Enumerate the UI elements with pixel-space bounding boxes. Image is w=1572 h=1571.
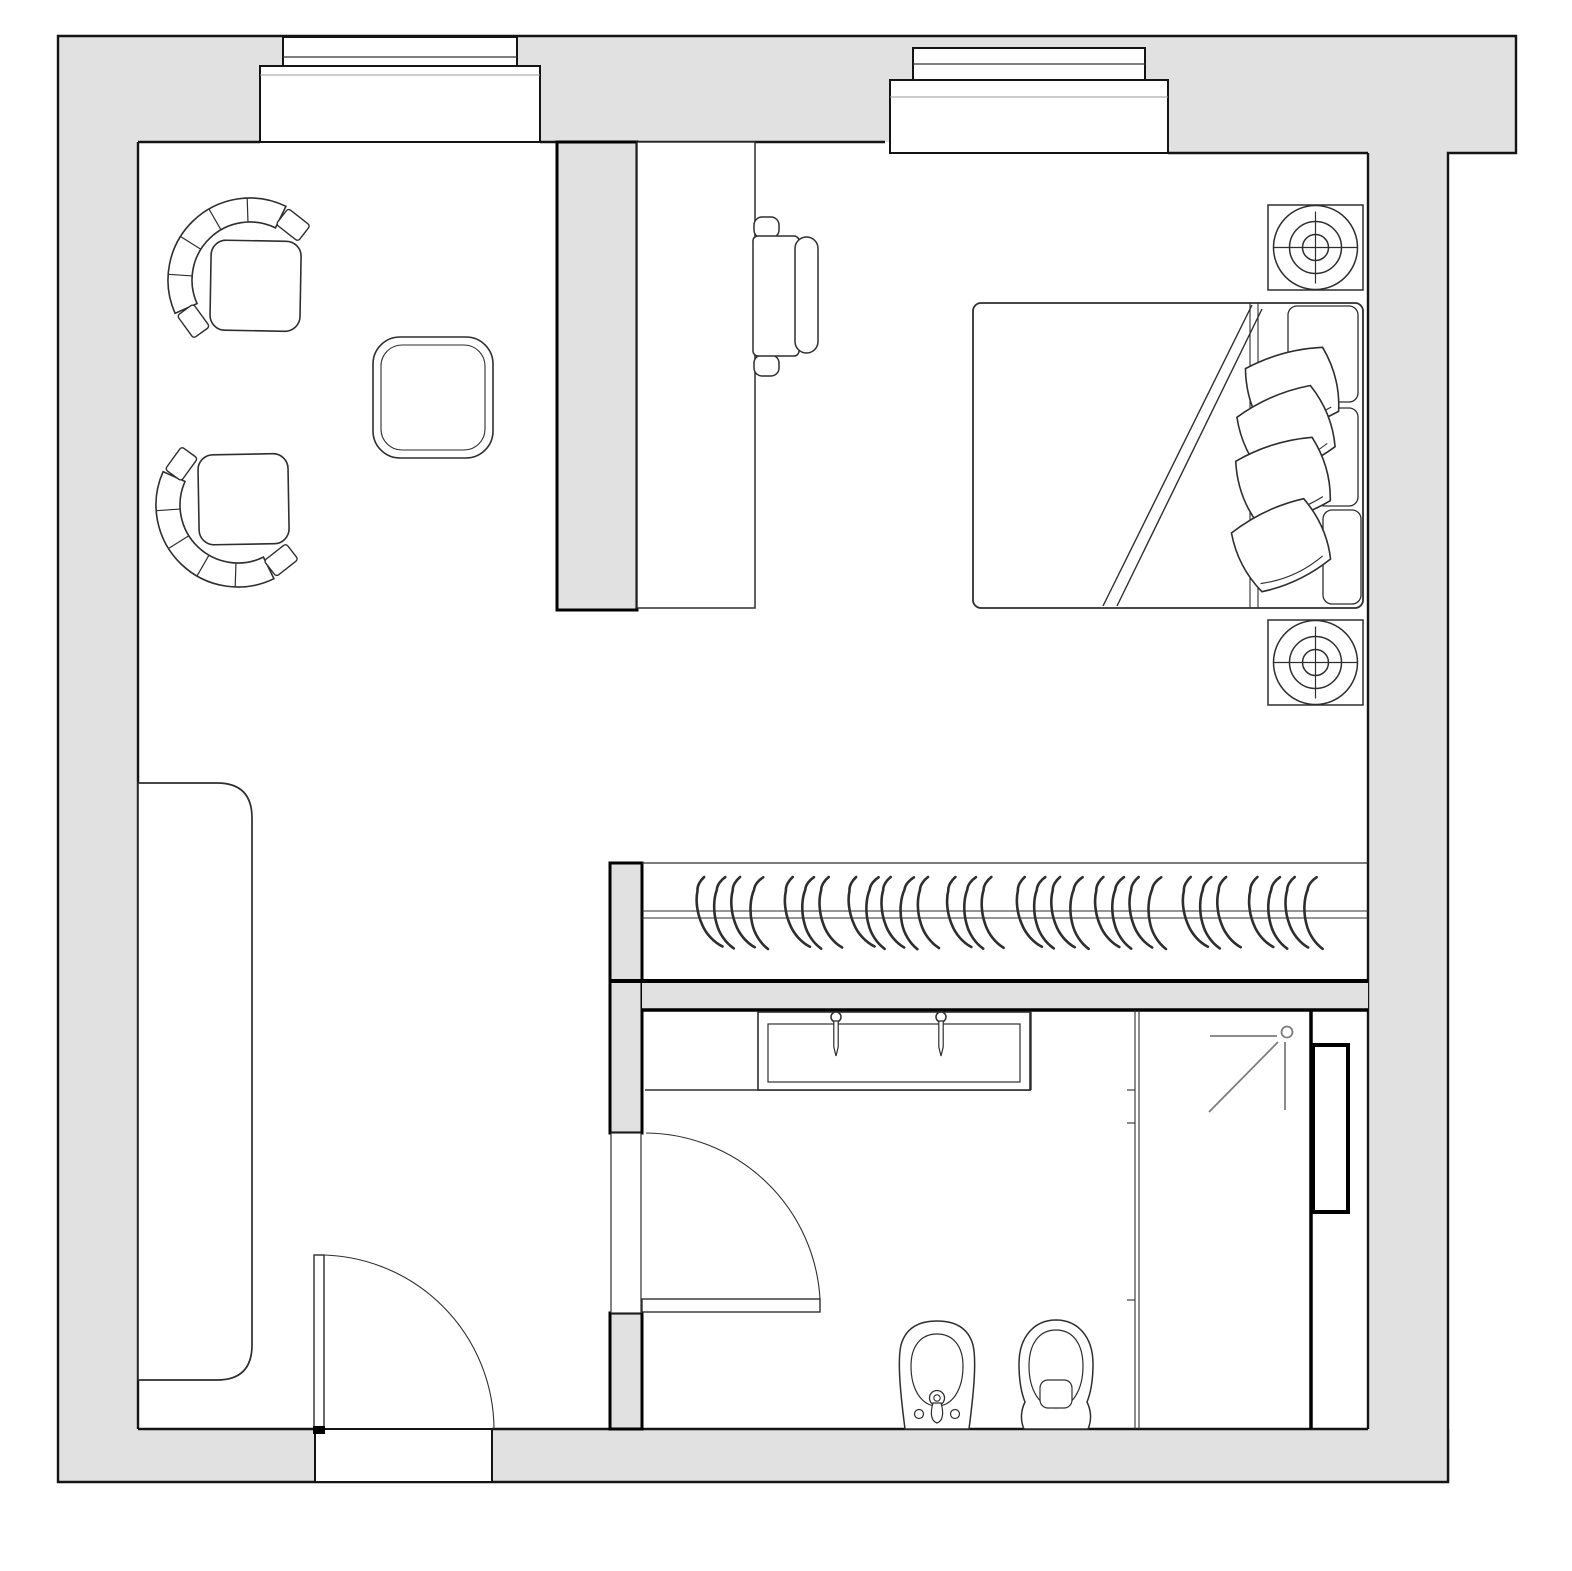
entry-door-swing-arc xyxy=(319,1255,494,1429)
entry-door-leaf xyxy=(314,1255,324,1429)
shower-glass-divider xyxy=(1127,1010,1139,1429)
bathroom-door-swing-arc xyxy=(646,1133,820,1299)
hanger-icon xyxy=(1068,877,1094,949)
wall-band-under-wardrobe xyxy=(642,983,1368,1010)
wall-right xyxy=(1368,142,1448,1482)
chair-armrest-bottom xyxy=(754,355,779,376)
office-chair xyxy=(753,217,818,376)
desk-area xyxy=(637,142,818,608)
toilet xyxy=(1019,1320,1093,1429)
armchair-top xyxy=(135,165,358,388)
window-glass-band xyxy=(283,37,517,66)
chair-armrest-top xyxy=(754,217,779,238)
shower-head-icon xyxy=(1209,1027,1293,1113)
wardrobe-hangers xyxy=(694,876,1328,949)
entry-door-hinge xyxy=(313,1426,325,1434)
window-top-right xyxy=(890,48,1168,153)
living-area xyxy=(123,165,493,1380)
desk xyxy=(637,142,755,608)
wall-top-right-extension xyxy=(1168,142,1516,153)
wall-bottom xyxy=(58,1429,1450,1482)
wardrobe xyxy=(642,863,1368,949)
hanger-icon xyxy=(819,877,843,949)
hanger-icon xyxy=(981,877,1003,948)
window-reveal xyxy=(260,66,540,142)
speaker-nightstand-top xyxy=(1268,205,1363,290)
storage-cabinet xyxy=(138,783,252,1380)
hanger-icon xyxy=(747,876,774,949)
window-top-left xyxy=(260,37,540,142)
floor-plan-page xyxy=(0,0,1572,1571)
bathroom xyxy=(611,1010,1348,1429)
shower-niche xyxy=(1313,1045,1348,1212)
toilet-water-box xyxy=(1040,1380,1072,1408)
speaker-nightstand-bottom xyxy=(1268,620,1363,705)
entry-threshold xyxy=(315,1429,492,1482)
wardrobe-side-wall-upper xyxy=(610,863,642,1133)
bathroom-door-leaf xyxy=(642,1299,820,1312)
hanger-icon xyxy=(864,877,890,949)
side-table xyxy=(373,337,493,458)
window-reveal xyxy=(890,80,1168,153)
floor-plan-canvas xyxy=(0,0,1572,1571)
hanger-icon xyxy=(1302,877,1328,949)
bathroom-side-wall-lower xyxy=(610,1313,642,1429)
wall-left xyxy=(58,36,138,1482)
chair-seat xyxy=(753,236,799,356)
partition-wall-living-bedroom xyxy=(557,142,637,610)
armchair-bottom xyxy=(123,397,346,620)
hanger-icon xyxy=(1145,876,1172,949)
bathroom-doorway xyxy=(611,1133,641,1313)
bidet-faucet-handle xyxy=(931,1403,942,1423)
bedroom xyxy=(973,205,1363,705)
hanger-icon xyxy=(918,877,939,948)
chair-backrest xyxy=(795,237,818,353)
bidet xyxy=(899,1321,974,1429)
hanger-icon xyxy=(1216,876,1241,948)
entry xyxy=(313,1255,494,1482)
